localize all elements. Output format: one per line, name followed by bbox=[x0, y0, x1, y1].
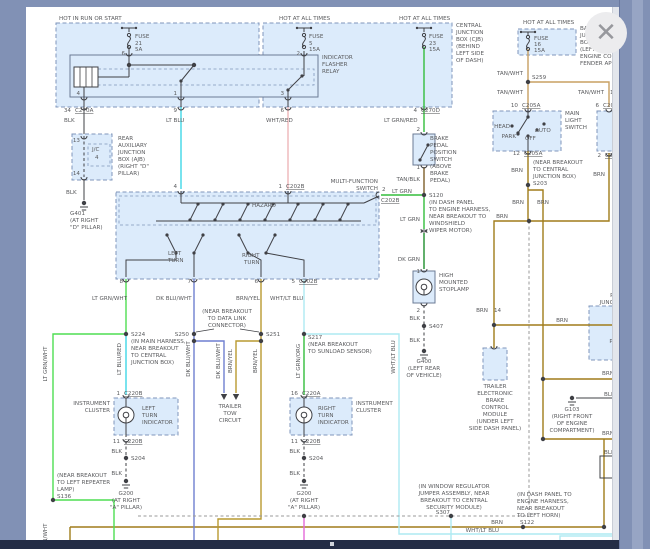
label: 11 bbox=[291, 439, 299, 445]
label: LT GRN bbox=[392, 189, 412, 195]
label: (AT RIGHT bbox=[290, 498, 319, 504]
label: S203 bbox=[533, 181, 548, 187]
label: NEAR BREAKOUT bbox=[131, 346, 179, 352]
label: BRN bbox=[556, 318, 568, 324]
label: WINDSHIELD bbox=[429, 221, 465, 227]
label: 1 bbox=[116, 391, 120, 397]
label: DK BLU/WHT bbox=[216, 343, 222, 379]
battery-tap bbox=[135, 27, 137, 29]
switch-contact-dot bbox=[264, 251, 267, 254]
battery-tap bbox=[121, 27, 123, 29]
label: LAMP) bbox=[57, 487, 74, 493]
label: BRAKE bbox=[430, 171, 449, 177]
label: (AT RIGHT bbox=[112, 498, 141, 504]
label: 4 bbox=[76, 91, 80, 97]
label: BLK bbox=[66, 190, 77, 196]
right-border bbox=[619, 0, 650, 549]
label: RIGHT bbox=[318, 406, 336, 412]
label: BLK bbox=[289, 449, 300, 455]
label: J/C bbox=[91, 147, 100, 153]
label: 4 bbox=[413, 108, 417, 114]
label: BRN bbox=[537, 200, 549, 206]
close-icon[interactable]: ✕ bbox=[585, 12, 627, 54]
bottom-bar-tick bbox=[330, 542, 334, 546]
label: AUXILIARY bbox=[118, 143, 148, 149]
label: BRN bbox=[512, 200, 524, 206]
label: BRN/YEL bbox=[236, 296, 261, 302]
label: (RIGHT "D" bbox=[118, 164, 149, 170]
label: OFF bbox=[525, 136, 536, 142]
diagram-page: HOT IN RUN OR STARTHOT AT ALL TIMESHOT A… bbox=[26, 7, 612, 549]
battery-tap bbox=[310, 27, 312, 29]
label: "A" PILLAR) bbox=[288, 505, 320, 511]
label: 6 bbox=[595, 103, 599, 109]
label: HAZARD bbox=[252, 203, 276, 209]
label: WHT/RED bbox=[266, 118, 293, 124]
label: ENGINE HARNESS, bbox=[517, 499, 569, 505]
label: C270D bbox=[421, 108, 440, 114]
splice-dot bbox=[302, 514, 306, 518]
battery-tap bbox=[520, 31, 522, 33]
splice-dot bbox=[526, 115, 529, 118]
label: BRN bbox=[496, 214, 508, 220]
label: RELAY bbox=[322, 69, 340, 75]
label: 2 bbox=[597, 153, 601, 159]
label: JUNCTION BOX) bbox=[130, 360, 174, 366]
label: (NEAR BREAKOUT bbox=[533, 160, 583, 166]
label: C220B bbox=[302, 439, 321, 445]
label: ELECTRONIC bbox=[477, 391, 513, 397]
switch-contact-dot bbox=[288, 218, 291, 221]
label: (UNDER LEFT bbox=[476, 419, 514, 425]
label: S407 bbox=[429, 324, 444, 330]
splice-dot bbox=[542, 122, 545, 125]
label: 10 bbox=[511, 103, 519, 109]
label: INDICATOR bbox=[322, 55, 353, 61]
label: TRAILER bbox=[217, 404, 241, 410]
battery-tap bbox=[296, 27, 298, 29]
label: BRN bbox=[593, 172, 605, 178]
label: WIPER MOTOR) bbox=[429, 228, 472, 234]
label: HOT AT ALL TIMES bbox=[523, 20, 575, 26]
label: TAN/BLK bbox=[396, 177, 421, 183]
label: LT GRN/WHT bbox=[43, 346, 49, 382]
label: 15A bbox=[429, 47, 440, 53]
label: C220A bbox=[302, 391, 321, 397]
switch-contact-dot bbox=[192, 251, 195, 254]
label: BLK bbox=[64, 118, 75, 124]
label: "D" PILLAR) bbox=[70, 225, 103, 231]
label: TO CENTRAL bbox=[532, 167, 569, 173]
label: MODULE bbox=[483, 412, 508, 418]
wire bbox=[304, 334, 618, 549]
label: 5 bbox=[291, 279, 295, 285]
label: C202B bbox=[381, 198, 400, 204]
splice-dot bbox=[302, 456, 306, 460]
label: LT BLU bbox=[166, 118, 184, 124]
label: TURN bbox=[167, 258, 184, 264]
label: INSTRUMENT bbox=[356, 401, 393, 407]
label: TO ENGINE HARNESS, bbox=[428, 207, 491, 213]
label: PILLAR) bbox=[118, 171, 139, 177]
ground-symbol bbox=[570, 396, 574, 400]
label: 1 bbox=[416, 165, 420, 171]
splice-dot bbox=[526, 183, 530, 187]
ground-symbol bbox=[82, 201, 86, 205]
label: BRN/YEL bbox=[228, 348, 234, 373]
label: FUSE bbox=[309, 34, 324, 40]
label: S204 bbox=[309, 456, 324, 462]
switch-contact-dot bbox=[196, 202, 199, 205]
switch-contact-dot bbox=[286, 88, 289, 91]
label: 15A bbox=[534, 48, 545, 54]
label: BREAKOUT TO CENTRAL bbox=[420, 498, 488, 504]
switch-contact-dot bbox=[273, 233, 276, 236]
label: (IN MAIN HARNESS, bbox=[131, 339, 186, 345]
label: JUMPER ASSEMBLY, NEAR bbox=[417, 491, 489, 497]
label: C205A bbox=[522, 103, 541, 109]
label: G200 bbox=[118, 491, 133, 497]
label: 4 bbox=[95, 155, 99, 161]
label: JUNCTION BOX) bbox=[532, 174, 576, 180]
label: PEDAL) bbox=[430, 178, 450, 184]
switch-contact-dot bbox=[321, 202, 324, 205]
label: S122 bbox=[520, 520, 534, 526]
label: 7 bbox=[187, 279, 191, 285]
splice-dot bbox=[259, 339, 263, 343]
label: S120 bbox=[429, 193, 444, 199]
label: TO LEFT HORN) bbox=[516, 513, 560, 519]
label: 2 bbox=[296, 51, 300, 57]
label: BRN bbox=[511, 168, 523, 174]
label: BRAKE bbox=[430, 136, 449, 142]
label: BLK bbox=[409, 316, 420, 322]
label: S259 bbox=[532, 75, 547, 81]
label: 34 bbox=[64, 108, 72, 114]
label: LT GRN/RED bbox=[384, 118, 418, 124]
label: (AT RIGHT bbox=[70, 218, 99, 224]
label: DK BLU/WHT bbox=[156, 296, 192, 302]
label: MULTI-FUNCTION bbox=[331, 179, 378, 185]
component-box bbox=[518, 29, 576, 55]
trailer-arrow bbox=[221, 394, 227, 400]
label: COMPARTMENT) bbox=[549, 428, 594, 434]
label: LT BLU/RED bbox=[117, 343, 123, 375]
label: 2 bbox=[416, 127, 420, 133]
label: BLK bbox=[289, 471, 300, 477]
wire bbox=[528, 190, 543, 439]
label: S307 bbox=[436, 510, 451, 516]
label: C205A bbox=[524, 151, 543, 157]
label: INDICATOR bbox=[318, 420, 349, 426]
label: (RIGHT FRONT bbox=[552, 414, 593, 420]
label: TO SUNLOAD SENSOR) bbox=[307, 349, 372, 355]
splice-dot bbox=[192, 63, 196, 67]
label: TURN bbox=[243, 260, 260, 266]
label: S217 bbox=[308, 335, 323, 341]
label: MAIN bbox=[565, 111, 580, 117]
label: FUSE bbox=[135, 34, 150, 40]
label: S204 bbox=[131, 456, 146, 462]
splice-dot bbox=[127, 63, 131, 67]
label: TO DATA LINK bbox=[207, 316, 247, 322]
label: WHT/LT BLU bbox=[466, 528, 499, 534]
label: G400 bbox=[416, 359, 431, 365]
label: SWITCH bbox=[430, 157, 452, 163]
switch-contact-dot bbox=[165, 233, 168, 236]
label: OF DASH) bbox=[456, 58, 483, 64]
label: (LEFT REAR bbox=[408, 366, 440, 372]
label: WHT/LT BLU bbox=[270, 296, 303, 302]
label: "A" PILLAR) bbox=[110, 505, 142, 511]
battery-tap bbox=[430, 27, 432, 29]
label: (IN DASH PANEL TO bbox=[517, 492, 572, 498]
label: LT GRN/WHT bbox=[92, 296, 128, 302]
switch-contact-dot bbox=[213, 218, 216, 221]
label: FUSE bbox=[429, 34, 444, 40]
ground-symbol bbox=[422, 349, 426, 353]
label: TURN bbox=[141, 413, 158, 419]
label: MOUNTED bbox=[439, 280, 468, 286]
label: BRN bbox=[476, 308, 488, 314]
label: CLUSTER bbox=[356, 408, 381, 414]
battery-tap bbox=[534, 31, 536, 33]
label: TO LEFT REPEATER bbox=[56, 480, 110, 486]
splice-dot bbox=[302, 332, 306, 336]
splice-dot bbox=[259, 332, 263, 336]
label: BLK bbox=[409, 338, 420, 344]
switch-contact-dot bbox=[246, 202, 249, 205]
label: TO CENTRAL bbox=[130, 353, 167, 359]
splice-dot bbox=[541, 377, 545, 381]
splice-dot bbox=[422, 193, 426, 197]
splice-dot bbox=[602, 525, 606, 529]
label: BRN/YEL bbox=[253, 348, 259, 373]
label: 1 bbox=[416, 269, 420, 275]
label: 12 bbox=[513, 151, 520, 157]
label: 14 bbox=[494, 308, 502, 314]
label: C220B bbox=[124, 439, 143, 445]
splice-dot bbox=[124, 456, 128, 460]
label: LEFT bbox=[168, 251, 182, 257]
label: HOT AT ALL TIMES bbox=[399, 16, 451, 22]
label: TAN/WHT bbox=[577, 90, 605, 96]
switch-contact-dot bbox=[179, 79, 182, 82]
label: NEAR BREAKOUT TO bbox=[429, 214, 487, 220]
label: SWITCH bbox=[565, 125, 587, 131]
label: BRN bbox=[491, 520, 503, 526]
label: PEDAL bbox=[430, 143, 449, 149]
label: TRAILER bbox=[482, 384, 506, 390]
splice-dot bbox=[526, 80, 530, 84]
label: G103 bbox=[564, 407, 579, 413]
label: (NEAR BREAKOUT bbox=[202, 309, 252, 315]
splice-dot bbox=[124, 332, 128, 336]
label: G200 bbox=[296, 491, 311, 497]
label: SECURITY MODULE) bbox=[426, 505, 482, 511]
trailer-arrow bbox=[233, 394, 239, 400]
ground-symbol bbox=[302, 479, 306, 483]
label: 2 bbox=[416, 308, 420, 314]
switch-contact-dot bbox=[201, 233, 204, 236]
label: BOX (CJB) bbox=[456, 37, 483, 43]
label: INDICATOR bbox=[142, 420, 173, 426]
label: S250 bbox=[175, 332, 190, 338]
label: LEFT SIDE bbox=[456, 51, 484, 57]
label: 6 bbox=[280, 108, 284, 114]
splice-dot bbox=[51, 498, 55, 502]
label: 6 bbox=[254, 279, 258, 285]
label: BLK bbox=[111, 471, 122, 477]
label: 1 bbox=[278, 184, 282, 190]
label: (IN WINDOW REGULATOR bbox=[418, 484, 489, 490]
label: C270A bbox=[75, 108, 94, 114]
wiring-diagram: HOT IN RUN OR STARTHOT AT ALL TIMESHOT A… bbox=[26, 7, 650, 549]
bottom-bar bbox=[0, 540, 619, 549]
switch-contact-dot bbox=[418, 158, 421, 161]
label: LIGHT bbox=[565, 118, 582, 124]
splice-dot bbox=[192, 339, 196, 343]
label: C220B bbox=[124, 391, 143, 397]
splice-dot bbox=[192, 332, 196, 336]
label: 3 bbox=[280, 91, 284, 97]
label: CONTROL bbox=[481, 405, 509, 411]
label: 14 bbox=[73, 171, 81, 177]
label: LEFT bbox=[142, 406, 156, 412]
label: C202B bbox=[299, 279, 318, 285]
label: LT GRN bbox=[400, 217, 420, 223]
pointer-line bbox=[196, 329, 214, 332]
label: TURN bbox=[317, 413, 334, 419]
label: PARK bbox=[502, 134, 517, 140]
splice-dot bbox=[510, 124, 513, 127]
switch-contact-dot bbox=[346, 202, 349, 205]
label: HIGH bbox=[439, 273, 453, 279]
label: HOT IN RUN OR START bbox=[59, 16, 122, 22]
label: SIDE DASH PANEL) bbox=[469, 426, 521, 432]
label: CENTRAL bbox=[456, 23, 483, 29]
label: S136 bbox=[57, 494, 72, 500]
switch-contact-dot bbox=[238, 218, 241, 221]
label: 1 bbox=[173, 91, 177, 97]
label: (IN DASH PANEL bbox=[429, 200, 475, 206]
label: CLUSTER bbox=[85, 408, 110, 414]
label: 11 bbox=[113, 439, 121, 445]
label: TOW bbox=[222, 411, 237, 417]
label: DK BLU/WHT bbox=[186, 341, 192, 377]
label: WHT/LT BLU bbox=[391, 340, 397, 373]
label: BOX (AJB) bbox=[118, 157, 145, 163]
switch-contact-dot bbox=[188, 218, 191, 221]
label: (ABOVE bbox=[430, 164, 452, 170]
label: OF ENGINE bbox=[557, 421, 588, 427]
label: 16 bbox=[291, 391, 299, 397]
splice-dot bbox=[527, 219, 531, 223]
label: G401 bbox=[70, 211, 85, 217]
label: TAN/WHT bbox=[496, 90, 524, 96]
switch-contact-dot bbox=[221, 202, 224, 205]
battery-tap bbox=[416, 27, 418, 29]
label: 15A bbox=[309, 47, 320, 53]
splice-dot bbox=[516, 132, 519, 135]
label: REAR bbox=[118, 136, 133, 142]
component-box bbox=[483, 348, 507, 380]
switch-contact-dot bbox=[300, 74, 303, 77]
label: OF VEHICLE) bbox=[406, 373, 441, 379]
label: INSTRUMENT bbox=[73, 401, 110, 407]
label: S224 bbox=[131, 332, 146, 338]
pointer-line bbox=[240, 329, 259, 332]
label: 4 bbox=[173, 184, 177, 190]
label: CONNECTOR) bbox=[208, 323, 246, 329]
label: 6 bbox=[121, 51, 125, 57]
label: JUNCTION bbox=[117, 150, 146, 156]
label: C202B bbox=[286, 184, 305, 190]
label: LT GRN/ORG bbox=[296, 344, 302, 378]
switch-contact-dot bbox=[338, 218, 341, 221]
label: 13 bbox=[73, 138, 81, 144]
switch-contact-dot bbox=[296, 202, 299, 205]
label: HEAD bbox=[494, 124, 510, 130]
ground-symbol bbox=[124, 479, 128, 483]
label: (BEHIND bbox=[456, 44, 480, 50]
label: CIRCUIT bbox=[219, 418, 242, 424]
label: 2 bbox=[382, 187, 386, 193]
label: POSITION bbox=[430, 150, 457, 156]
label: HOT AT ALL TIMES bbox=[279, 16, 331, 22]
label: RIGHT bbox=[242, 253, 260, 259]
label: SWITCH bbox=[356, 186, 378, 192]
label: BRAKE bbox=[486, 398, 505, 404]
splice-dot bbox=[492, 323, 496, 327]
label: FLASHER bbox=[322, 62, 348, 68]
label: JUNCTION bbox=[455, 30, 484, 36]
label: TAN/WHT bbox=[496, 71, 524, 77]
label: (NEAR BREAKOUT bbox=[57, 473, 107, 479]
switch-contact-dot bbox=[237, 233, 240, 236]
label: STOPLAMP bbox=[439, 287, 470, 293]
label: 8 bbox=[119, 279, 123, 285]
switch-contact-dot bbox=[313, 218, 316, 221]
label: S251 bbox=[266, 332, 281, 338]
label: DK GRN bbox=[398, 257, 420, 263]
viewer-window: HOT IN RUN OR STARTHOT AT ALL TIMESHOT A… bbox=[0, 0, 650, 549]
splice-dot bbox=[422, 324, 426, 328]
label: NEAR BREAKOUT bbox=[517, 506, 565, 512]
splice-dot bbox=[541, 437, 545, 441]
label: AUTO bbox=[535, 128, 551, 134]
label: (NEAR BREAKOUT bbox=[308, 342, 358, 348]
label: 9 bbox=[173, 108, 177, 114]
label: BLK bbox=[111, 449, 122, 455]
switch-contact-dot bbox=[263, 218, 266, 221]
label: 5A bbox=[135, 47, 143, 53]
